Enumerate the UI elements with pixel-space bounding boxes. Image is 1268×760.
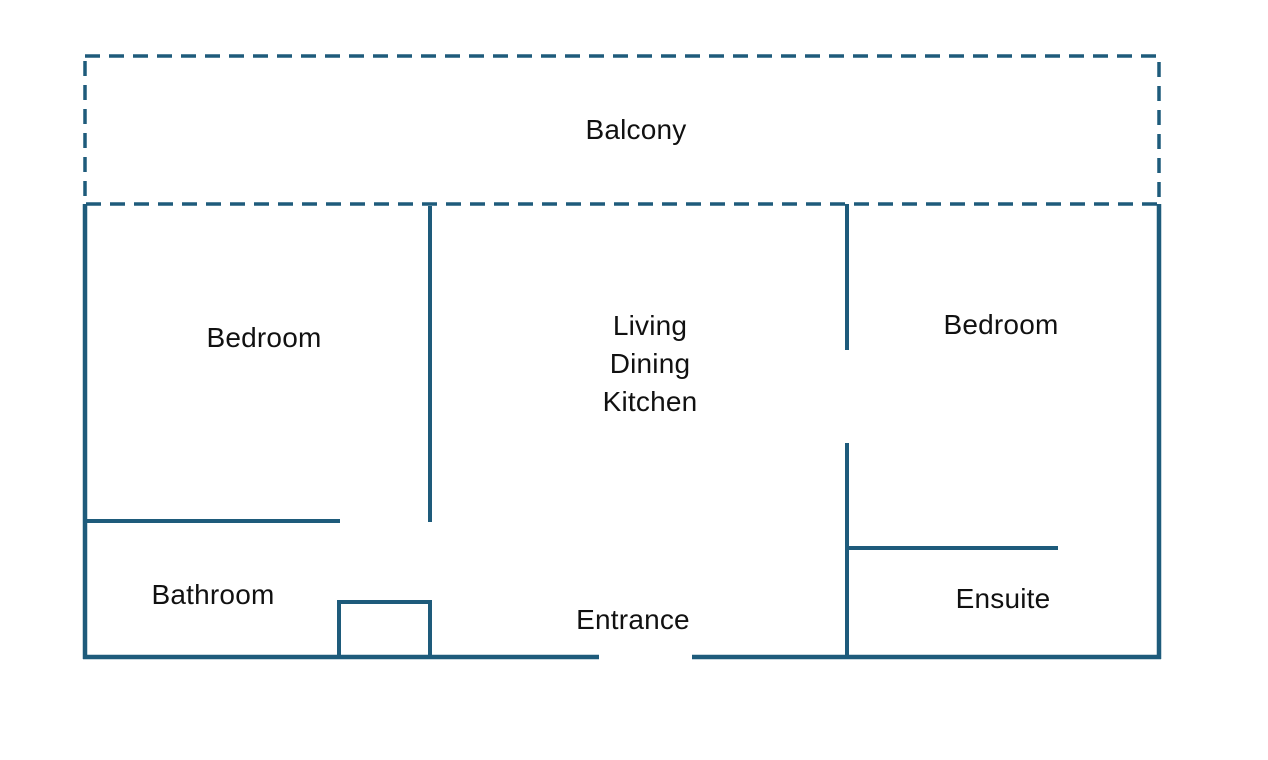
closet-outline (339, 602, 430, 659)
label-living-dining-kitchen: Living Dining Kitchen (603, 307, 698, 421)
floor-plan-canvas: Balcony Bedroom Living Dining Kitchen Be… (0, 0, 1268, 760)
label-bedroom-left: Bedroom (206, 319, 321, 357)
label-bathroom: Bathroom (152, 576, 275, 614)
label-balcony: Balcony (585, 111, 686, 149)
label-ensuite: Ensuite (956, 580, 1051, 618)
label-entrance: Entrance (576, 601, 690, 639)
label-bedroom-right: Bedroom (943, 306, 1058, 344)
